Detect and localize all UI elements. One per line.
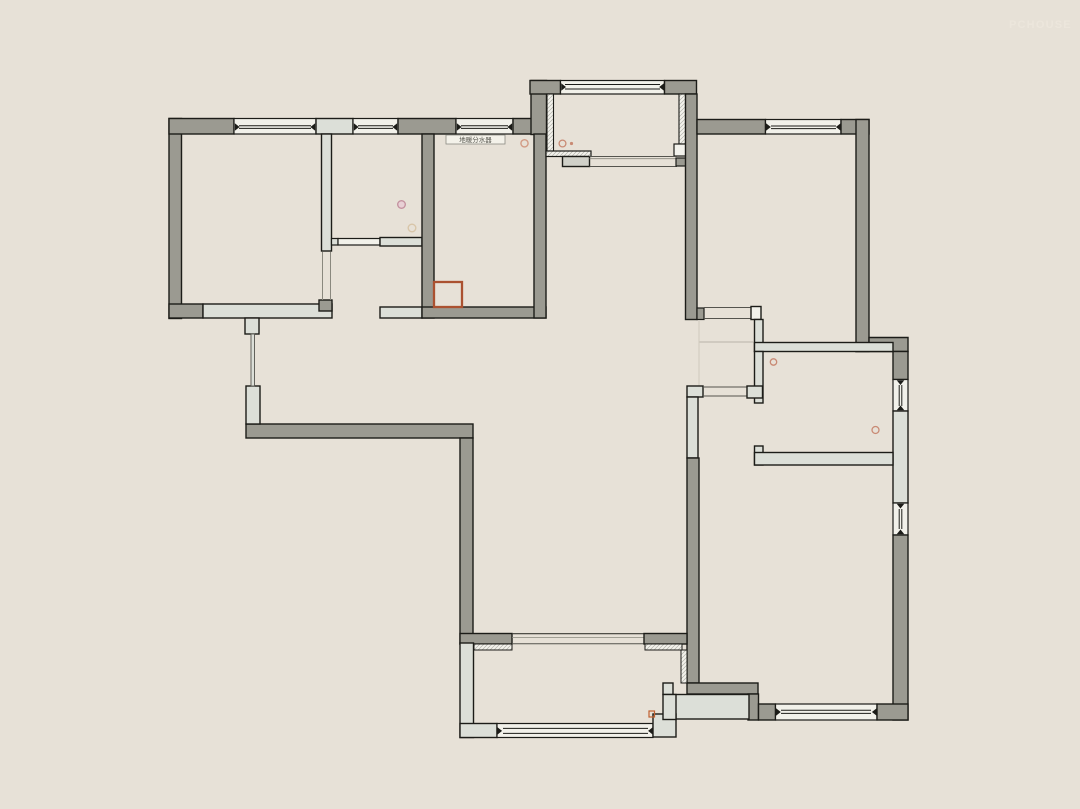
svg-text:地暖分水器: 地暖分水器 bbox=[459, 135, 492, 144]
svg-text:PCHOUSE: PCHOUSE bbox=[1009, 19, 1072, 31]
